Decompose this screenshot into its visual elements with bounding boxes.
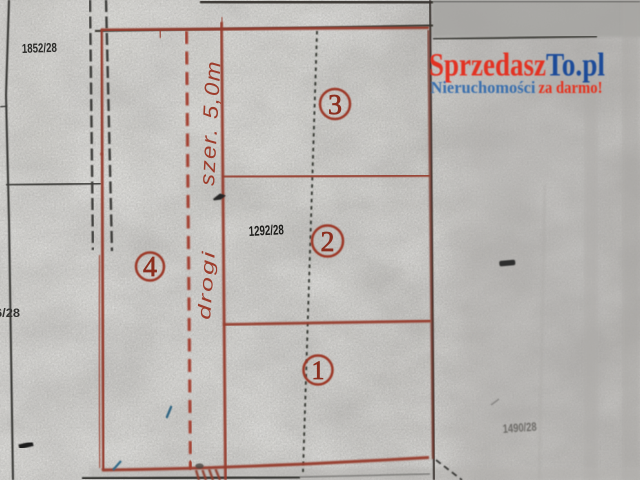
svg-text:Nieruchomości: Nieruchomości (431, 78, 536, 97)
svg-text:3: 3 (328, 90, 342, 121)
svg-text:1292/28: 1292/28 (248, 221, 284, 239)
svg-text:4: 4 (143, 252, 157, 283)
svg-text:1852/28: 1852/28 (22, 40, 58, 56)
svg-text:za darmo!: za darmo! (539, 78, 603, 97)
svg-text:1490/28: 1490/28 (502, 422, 537, 436)
svg-text:1: 1 (312, 356, 325, 385)
svg-text:6/28: 6/28 (0, 306, 20, 320)
svg-text:2: 2 (321, 227, 335, 258)
